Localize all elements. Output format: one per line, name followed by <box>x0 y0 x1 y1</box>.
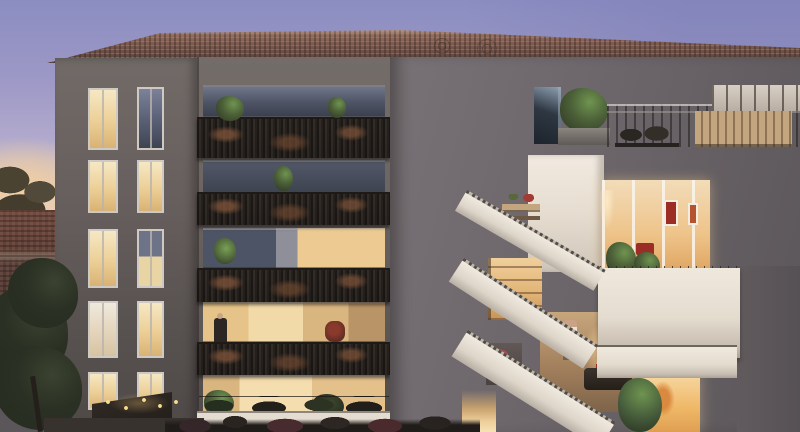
patio-tree <box>618 378 662 432</box>
wall-lamp-glow <box>600 190 614 228</box>
tree-foliage <box>8 258 78 328</box>
foreground-tree <box>0 258 100 432</box>
glazing-row <box>203 160 385 193</box>
red-artwork <box>664 200 678 226</box>
window-half-lit <box>137 229 164 288</box>
rooftop-planter <box>558 128 610 145</box>
rooftop-glass-element <box>534 87 561 144</box>
seated-figure <box>325 321 345 342</box>
building-render <box>0 0 800 432</box>
balcony-plant <box>274 166 293 191</box>
balcony-railing <box>197 268 390 302</box>
rooftop-wood-table <box>695 111 792 147</box>
orange-artwork <box>688 203 698 225</box>
string-lights <box>96 384 192 416</box>
balcony-plant <box>216 96 244 121</box>
balcony-plant <box>328 97 346 118</box>
rooftop-glass-panel <box>712 85 800 111</box>
balcony-railing <box>197 342 390 375</box>
window-dark <box>137 87 164 150</box>
balcony-railing <box>197 117 390 158</box>
balcony-railing <box>197 192 390 225</box>
glazing-row-lit <box>203 302 385 343</box>
foreground-bushes <box>165 414 480 432</box>
right-edge-wall <box>737 266 800 432</box>
rooftop-furniture-dark <box>615 120 679 147</box>
balcony-slab-front <box>597 345 737 378</box>
window-lit <box>137 301 164 358</box>
round-green-plant <box>214 238 236 264</box>
window-lit <box>88 160 118 213</box>
window-lit <box>137 160 164 213</box>
window-lit <box>88 88 118 150</box>
rooftop-plant <box>560 88 608 132</box>
